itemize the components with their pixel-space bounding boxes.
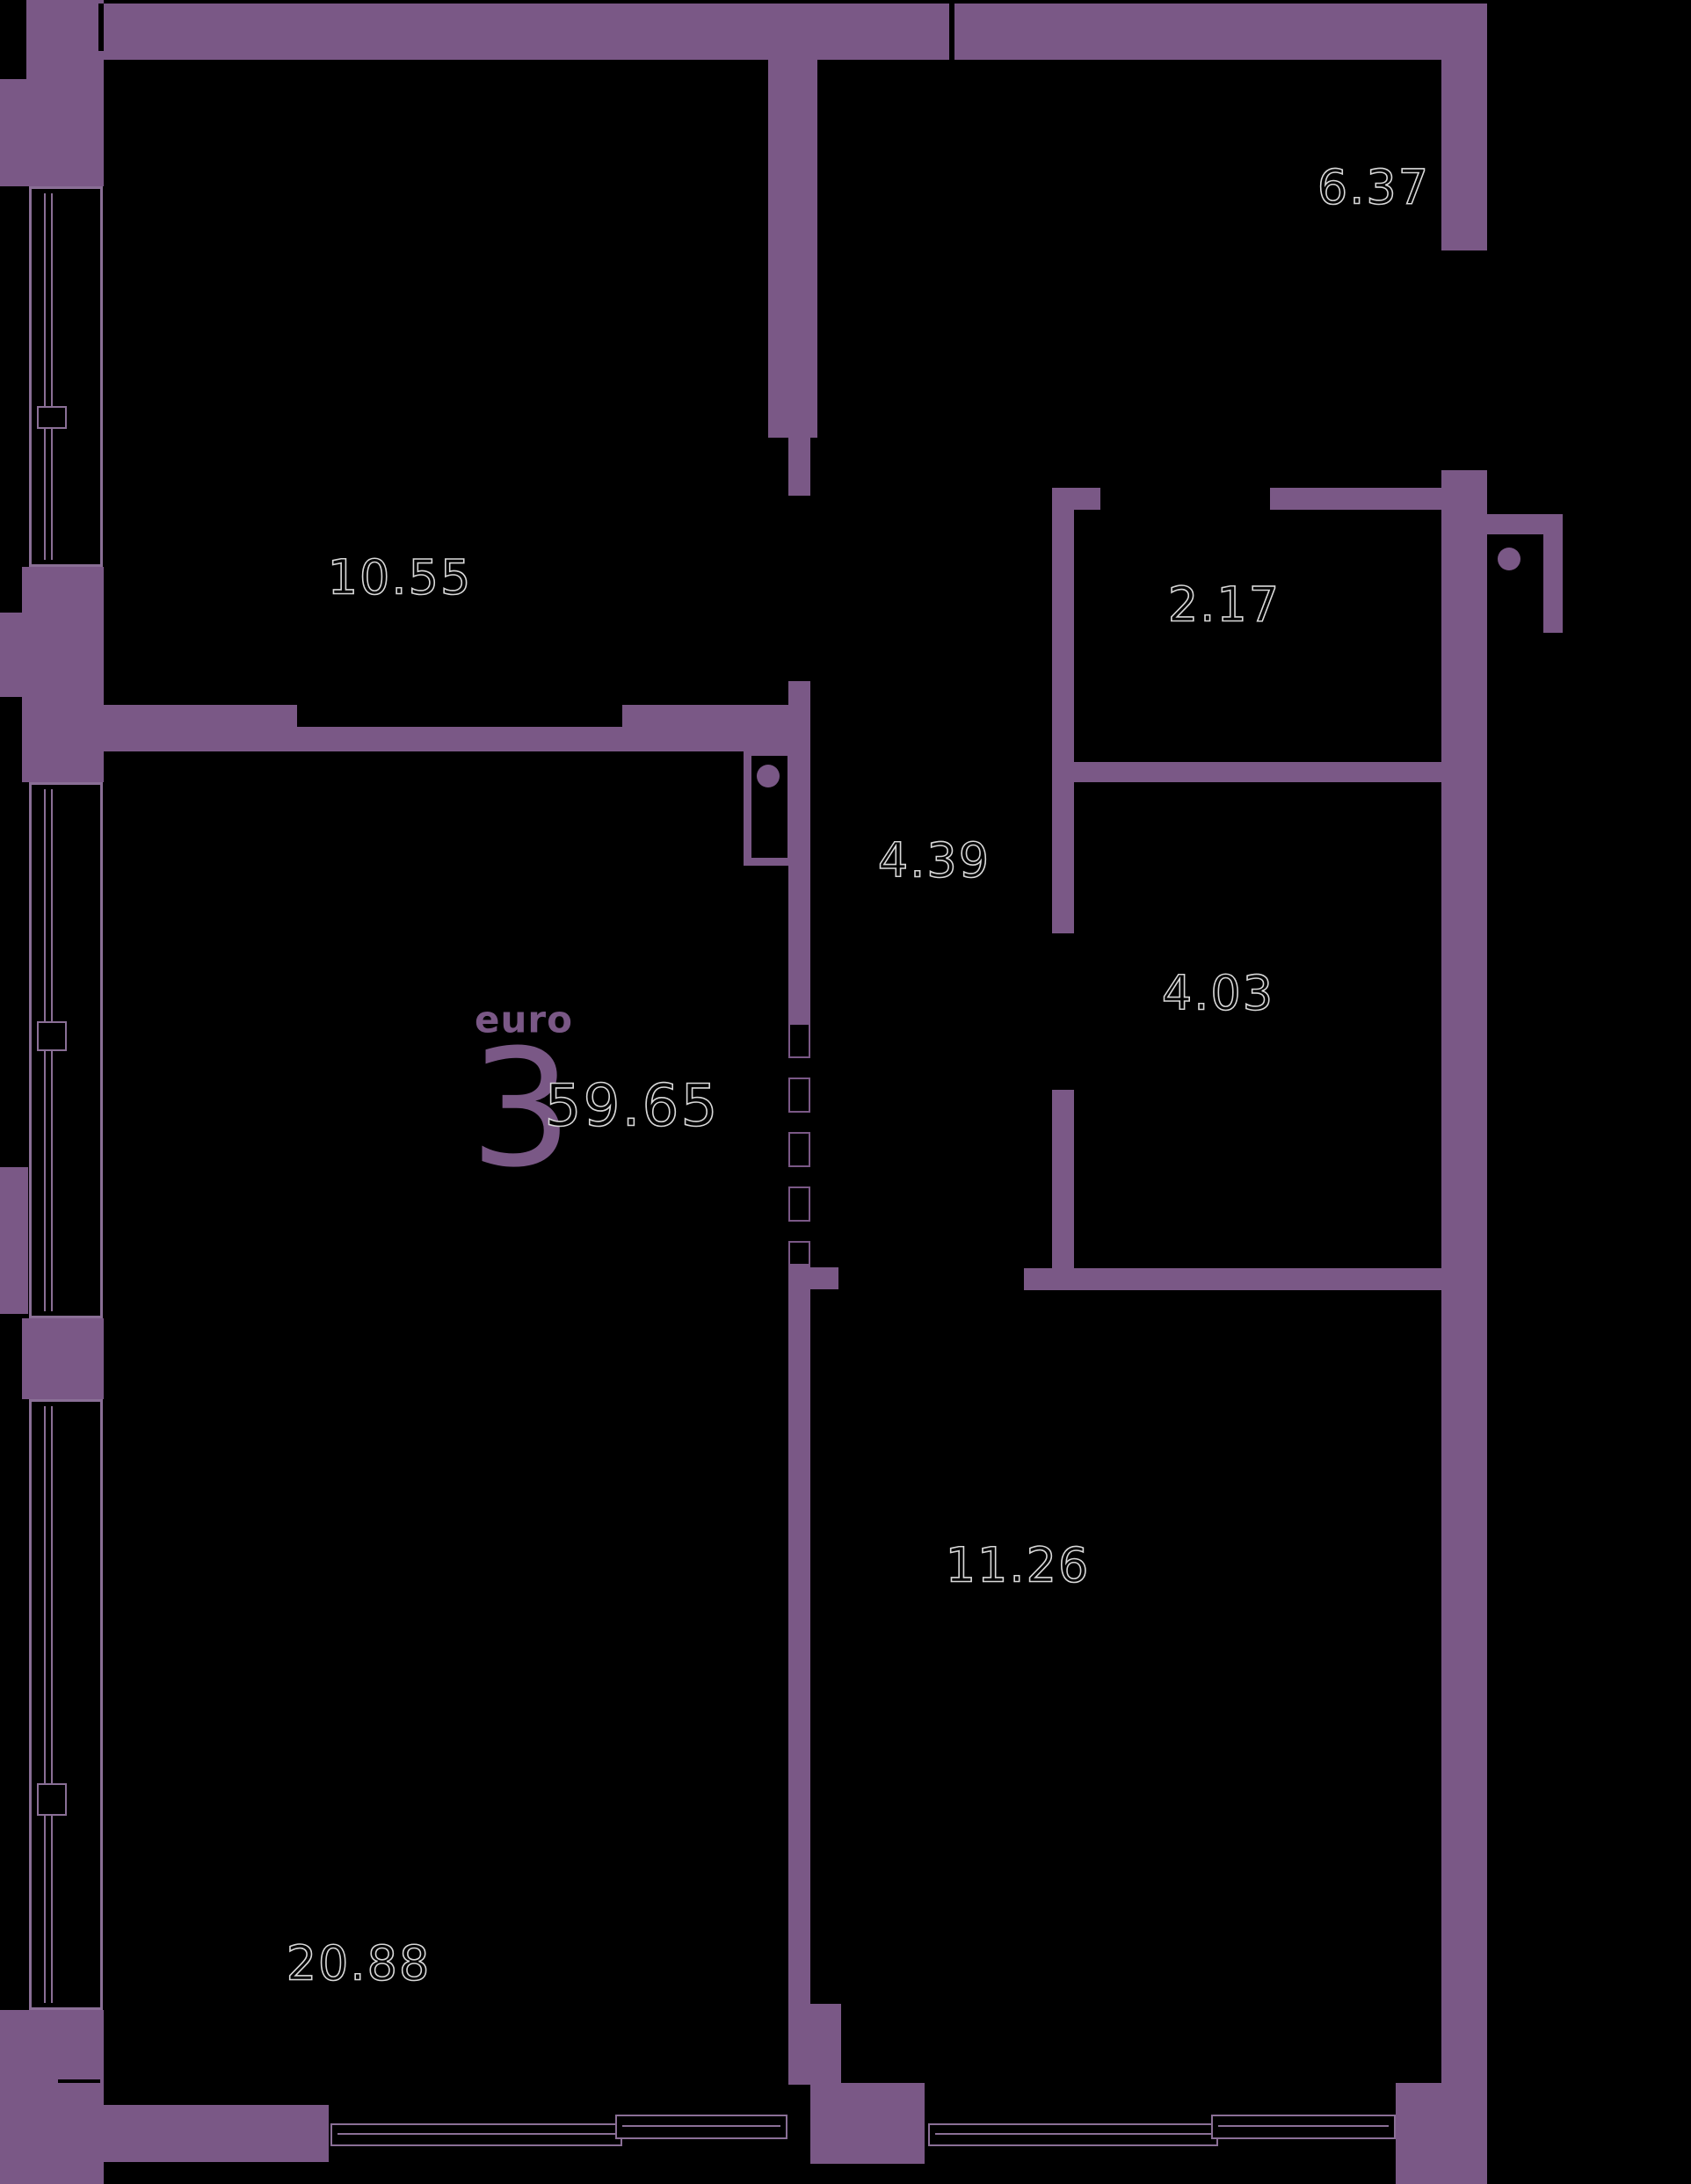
- wall-corner-bottom-right: [1396, 2083, 1487, 2184]
- wall-opening-dash-icon: [788, 1132, 810, 1167]
- window-icon: [29, 1316, 103, 1318]
- wall-step-top-left: [0, 79, 28, 186]
- wall-bottom-living-left: [104, 2105, 329, 2162]
- window-sliding-pane-icon: [615, 2115, 787, 2139]
- wall-kitchen-divider-tail: [788, 438, 810, 496]
- wall-bottom-1126-left: [810, 2083, 925, 2164]
- wall-opening-dash-icon: [788, 1186, 810, 1222]
- window-icon: [29, 1399, 32, 2010]
- window-icon: [100, 1399, 103, 2010]
- window-icon: [29, 2007, 103, 2010]
- window-icon: [29, 1399, 103, 1402]
- wall-opening-dash-icon: [788, 1241, 810, 1266]
- room-area-label: 20.88: [287, 1936, 432, 1992]
- wall-left-block-1: [22, 567, 104, 782]
- window-icon: [29, 782, 32, 1318]
- wall-center-base: [788, 2004, 841, 2085]
- wall-corner-top-left: [26, 0, 104, 186]
- wall-center-lower: [788, 1266, 810, 2004]
- sill-tick-icon: [58, 2079, 100, 2083]
- entrance-frame-top: [1487, 514, 1563, 534]
- window-icon: [44, 193, 46, 560]
- wall-opening-dash-icon: [788, 1077, 810, 1113]
- wall-bath-bottom: [1024, 1268, 1487, 1290]
- window-icon: [1218, 2125, 1389, 2127]
- floor-plan: 10.55 6.37 2.17 4.39 4.03 11.26 20.88 eu…: [0, 0, 1691, 2184]
- window-icon: [29, 782, 103, 785]
- window-transom-icon: [37, 1021, 67, 1051]
- wall-wc-bath-divider: [1052, 762, 1441, 782]
- separator-line-icon: [98, 4, 104, 51]
- window-icon: [51, 193, 53, 560]
- wall-10-55-bottom-b: [297, 727, 622, 751]
- window-icon: [51, 1406, 53, 2003]
- room-area-label: 10.55: [328, 550, 473, 606]
- wall-opening-dash-icon: [788, 1023, 810, 1058]
- window-sliding-pane-icon: [1211, 2115, 1396, 2139]
- window-icon: [928, 2123, 1218, 2146]
- wall-kitchen-divider-upper: [768, 60, 817, 438]
- window-icon: [100, 782, 103, 1318]
- wall-left-step-1: [0, 613, 25, 697]
- wall-center-upper: [788, 681, 810, 1023]
- window-icon: [29, 186, 32, 567]
- wall-wc-left: [1052, 488, 1074, 782]
- wall-right-main: [1441, 470, 1487, 2118]
- window-icon: [29, 186, 103, 189]
- window-icon: [330, 2123, 622, 2146]
- wall-bath-left-upper: [1052, 782, 1074, 933]
- window-icon: [100, 186, 103, 567]
- wall-left-step-2: [0, 1167, 28, 1314]
- wall-10-55-bottom-a: [104, 705, 297, 751]
- door-knob-icon: [757, 765, 780, 787]
- wall-10-55-bottom-c: [622, 705, 788, 751]
- window-icon: [935, 2133, 1211, 2135]
- window-icon: [29, 564, 103, 567]
- window-icon: [622, 2125, 780, 2127]
- entrance-frame-right: [1543, 534, 1563, 633]
- wall-bath-left-lower: [1052, 1090, 1074, 1269]
- room-area-label: 6.37: [1317, 160, 1430, 215]
- apartment-total-area: 59.65: [545, 1072, 720, 1140]
- wall-right-top: [1441, 60, 1487, 250]
- window-transom-icon: [37, 406, 67, 429]
- room-area-label: 4.03: [1162, 966, 1274, 1021]
- wall-top: [104, 4, 1487, 60]
- wall-left-block-2: [22, 1318, 104, 1399]
- separator-line-icon: [949, 4, 954, 60]
- wall-center-nub: [807, 1267, 838, 1289]
- room-area-label: 11.26: [946, 1538, 1091, 1593]
- window-transom-icon: [37, 1783, 67, 1816]
- wall-wc-top-right: [1270, 488, 1441, 510]
- room-area-label: 2.17: [1168, 577, 1281, 633]
- window-icon: [44, 1406, 46, 2003]
- wall-corner-bottom-left: [0, 2010, 104, 2184]
- entrance-door-knob-icon: [1498, 548, 1520, 570]
- room-area-label: 4.39: [878, 833, 991, 889]
- window-icon: [337, 2133, 615, 2135]
